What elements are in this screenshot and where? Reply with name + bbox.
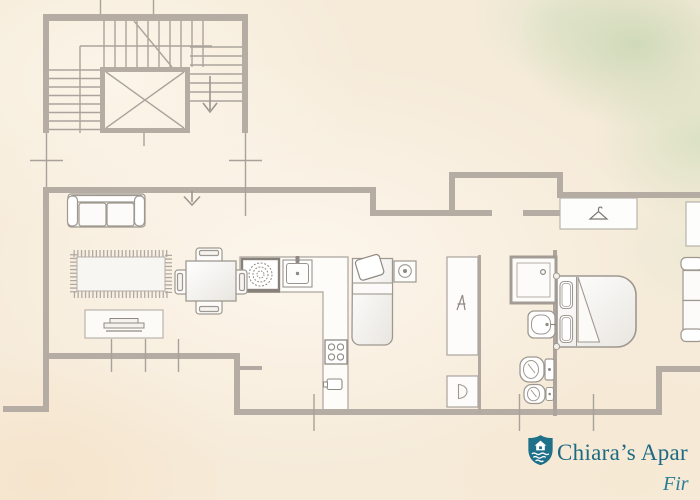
shower xyxy=(511,257,556,303)
brand-subtitle: Fir xyxy=(663,473,689,496)
elevator-x-icon xyxy=(106,72,184,128)
side-sofa xyxy=(681,258,700,342)
bidet-icon xyxy=(524,385,554,404)
washbasin-icon xyxy=(528,311,558,338)
entrance-arrow-icon xyxy=(184,191,200,205)
wardrobe xyxy=(560,198,637,229)
double-bed xyxy=(553,273,636,350)
brand-logo-shield-house-waves-icon xyxy=(527,433,554,467)
kitchen-counter xyxy=(240,256,348,412)
hinge-dot xyxy=(553,343,559,349)
brand-title: Chiara’s Apar xyxy=(557,440,688,466)
dining-table xyxy=(186,261,236,301)
floor-plan-drawing xyxy=(0,0,700,500)
washing-machine-icon xyxy=(394,261,416,282)
toilet-icon xyxy=(520,357,554,382)
stair-down-arrow-icon xyxy=(203,76,217,112)
single-bed xyxy=(352,254,393,345)
tv-console xyxy=(85,310,163,338)
dining-set xyxy=(175,248,247,314)
elevator xyxy=(103,70,188,131)
side-room-furniture xyxy=(681,202,700,342)
staircase xyxy=(49,21,242,133)
cooktop-burners-icon xyxy=(325,340,347,364)
tall-cabinet xyxy=(447,257,478,355)
floor-plan-screenshot: Chiara’s Apar Fir xyxy=(0,0,700,500)
base-cabinet xyxy=(447,376,478,407)
sofa xyxy=(68,194,146,227)
kitchen-sink-icon xyxy=(283,256,312,287)
rug xyxy=(74,254,169,295)
hinge-dot xyxy=(553,273,559,279)
stair-treads xyxy=(49,21,242,133)
